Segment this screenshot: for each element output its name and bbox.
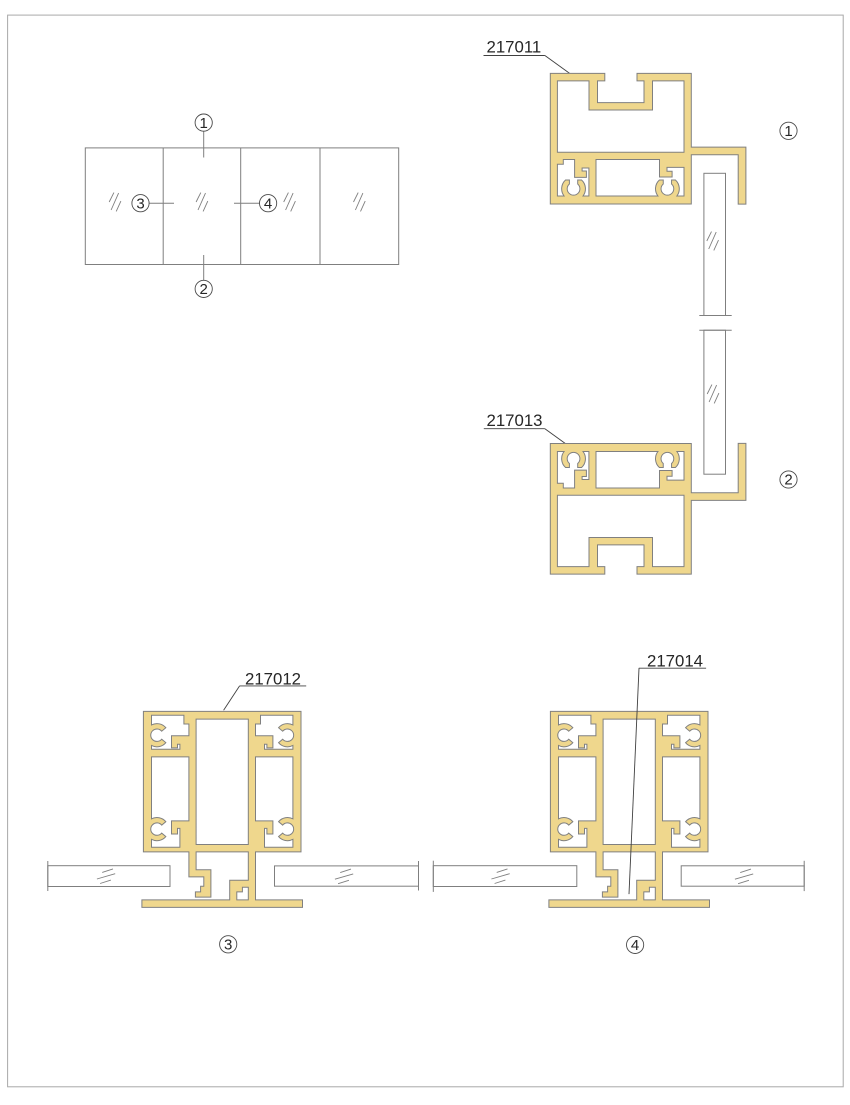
svg-text:217013: 217013: [487, 411, 543, 430]
svg-text:1: 1: [784, 123, 792, 140]
svg-text:4: 4: [264, 195, 272, 212]
svg-text:3: 3: [224, 937, 232, 954]
svg-text:2: 2: [784, 472, 792, 489]
svg-text:4: 4: [631, 937, 639, 954]
svg-text:217011: 217011: [487, 38, 542, 57]
svg-text:3: 3: [136, 195, 144, 212]
svg-text:2: 2: [200, 281, 208, 298]
svg-text:1: 1: [200, 115, 208, 132]
